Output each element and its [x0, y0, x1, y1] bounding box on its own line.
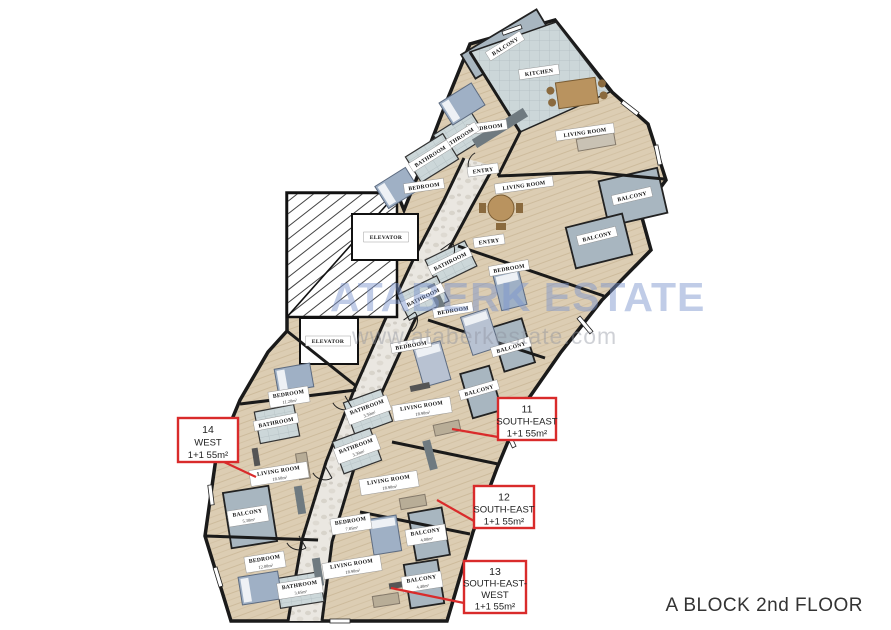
svg-text:WEST: WEST [481, 590, 509, 601]
bed [368, 515, 401, 555]
svg-text:1+1 55m²: 1+1 55m² [475, 601, 515, 612]
svg-text:11: 11 [522, 403, 533, 415]
svg-text:ELEVATOR: ELEVATOR [370, 235, 403, 241]
svg-text:WEST: WEST [194, 438, 222, 449]
svg-text:14: 14 [202, 424, 214, 436]
bed [238, 571, 282, 605]
svg-text:SOUTH-EAST-: SOUTH-EAST- [463, 578, 527, 589]
room-label: ELEVATOR [306, 336, 351, 346]
floor-plan-drawing: BALCONYKITCHENBEDROOMBATHROOMBATHROOMLIV… [0, 0, 891, 630]
svg-text:1+1 55m²: 1+1 55m² [507, 428, 547, 439]
floor-plan-page: BALCONYKITCHENBEDROOMBATHROOMBATHROOMLIV… [0, 0, 891, 630]
svg-text:12: 12 [498, 491, 510, 503]
svg-text:1+1 55m²: 1+1 55m² [188, 450, 228, 461]
svg-text:13: 13 [489, 566, 501, 578]
floor-title: A BLOCK 2nd FLOOR [665, 595, 863, 617]
svg-text:SOUTH-EAST: SOUTH-EAST [473, 504, 534, 515]
svg-text:ELEVATOR: ELEVATOR [312, 339, 345, 345]
svg-text:SOUTH-EAST: SOUTH-EAST [496, 416, 557, 427]
room-label: ELEVATOR [364, 232, 409, 242]
round-dining-table [488, 195, 514, 221]
svg-text:1+1 55m²: 1+1 55m² [484, 516, 524, 527]
